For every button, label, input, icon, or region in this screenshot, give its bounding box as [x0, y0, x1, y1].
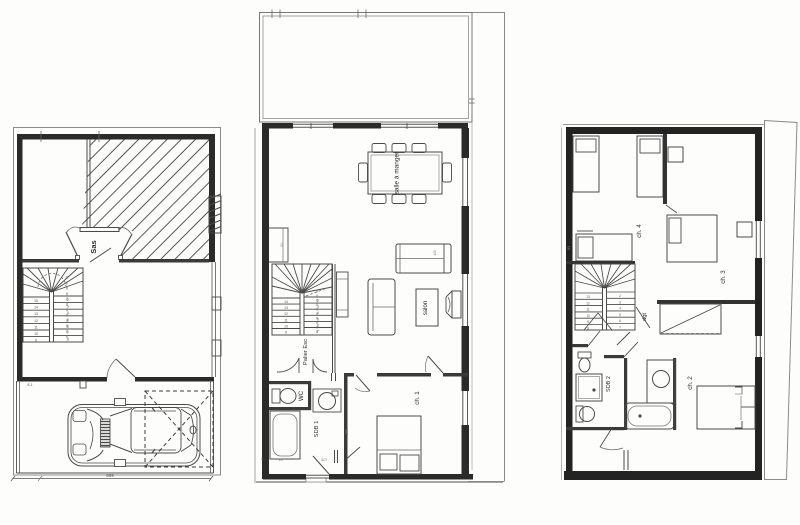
svg-text:12: 12 [284, 312, 288, 316]
svg-text:140: 140 [433, 250, 437, 256]
svg-text:WC: WC [298, 390, 305, 401]
svg-text:3: 3 [619, 300, 621, 304]
svg-text:7: 7 [619, 326, 621, 330]
svg-text:15: 15 [34, 299, 38, 303]
svg-text:9: 9 [285, 331, 287, 335]
svg-text:Palier Esc: Palier Esc [303, 339, 309, 365]
svg-text:Sas: Sas [89, 240, 98, 253]
svg-text:5: 5 [619, 313, 621, 317]
svg-text:11: 11 [586, 308, 590, 312]
svg-text:14: 14 [284, 300, 288, 304]
svg-text:7: 7 [298, 369, 300, 373]
svg-text:12: 12 [586, 301, 590, 305]
svg-text:5: 5 [261, 457, 263, 461]
svg-text:4: 4 [619, 307, 621, 311]
svg-text:salon: salon [423, 301, 429, 315]
svg-text:93: 93 [280, 243, 284, 247]
svg-text:ch. 4: ch. 4 [636, 224, 643, 238]
svg-text:200: 200 [345, 429, 349, 435]
svg-text:SDB 2: SDB 2 [606, 376, 612, 392]
svg-text:12: 12 [34, 319, 38, 323]
svg-text:ch. 3: ch. 3 [720, 270, 727, 284]
svg-text:13: 13 [34, 312, 38, 316]
svg-text:13: 13 [586, 295, 590, 299]
svg-text:8,1: 8,1 [27, 383, 32, 387]
svg-text:8: 8 [587, 327, 589, 331]
svg-text:93: 93 [567, 246, 571, 250]
svg-text:ch. 1: ch. 1 [414, 391, 421, 405]
svg-text:10: 10 [34, 332, 38, 336]
svg-text:SDB 1: SDB 1 [314, 421, 320, 438]
svg-text:10: 10 [586, 314, 590, 318]
svg-text:11: 11 [284, 318, 288, 322]
svg-text:2: 2 [619, 294, 621, 298]
svg-text:&CI: &CI [321, 458, 327, 462]
svg-text:14: 14 [34, 306, 38, 310]
svg-text:6: 6 [619, 319, 621, 323]
svg-text:ch. 2: ch. 2 [687, 376, 694, 390]
svg-text:10: 10 [284, 324, 288, 328]
svg-text:13: 13 [284, 306, 288, 310]
svg-text:EV: EV [279, 458, 284, 462]
svg-text:869: 869 [106, 473, 114, 478]
svg-text:9: 9 [35, 339, 37, 343]
svg-text:salle à manger: salle à manger [394, 151, 401, 194]
svg-text:11: 11 [34, 325, 38, 329]
